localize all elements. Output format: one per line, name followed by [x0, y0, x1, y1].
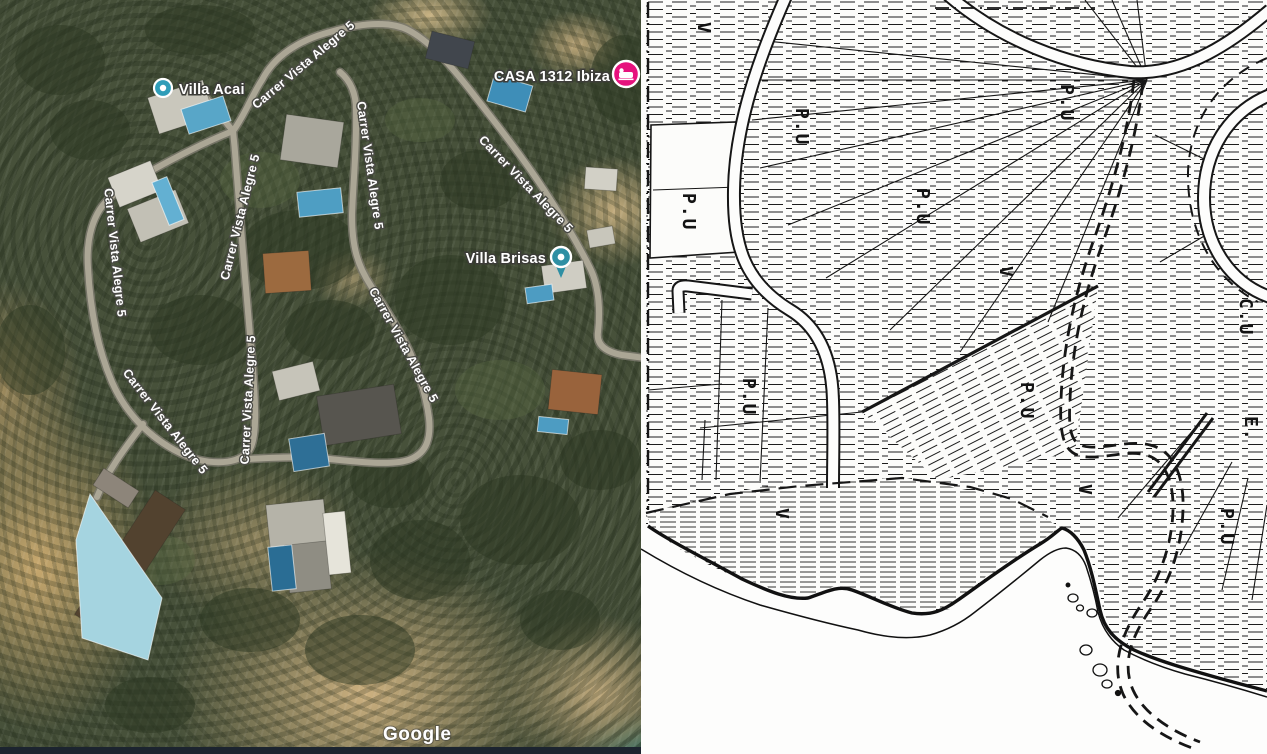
zone-label-pu: P.U — [1016, 382, 1037, 421]
zone-label-v: V — [1074, 484, 1095, 497]
google-watermark: Google — [383, 724, 451, 745]
zone-label-pu: P.U — [912, 188, 933, 227]
place-casa-1312-ibiza[interactable]: CASA 1312 Ibiza — [494, 61, 639, 87]
satellite-overlay: Carrer Vista Alegre 5 Carrer Vista Alegr… — [0, 0, 641, 754]
zone-label-v: V — [995, 266, 1016, 279]
place-label-villa-acai[interactable]: Villa Acai — [179, 82, 245, 98]
zone-label-pu: P.U — [1056, 84, 1077, 123]
zone-label-cu: C.U — [1235, 298, 1256, 337]
white-parcel — [650, 122, 739, 258]
zone-label-pu: P.U — [738, 378, 759, 417]
place-villa-acai[interactable]: Villa Acai — [154, 79, 245, 98]
place-pin-center — [558, 254, 565, 261]
zone-label-pu: P.U — [1216, 508, 1237, 547]
map-bottom-strip — [0, 747, 641, 754]
zone-label-v: V — [693, 22, 714, 35]
place-label-villa-brisas[interactable]: Villa Brisas — [466, 251, 546, 267]
zone-label-e: E. — [1240, 416, 1261, 442]
street-label-carrer-vista-alegre: Carrer Vista Alegre 5 — [101, 188, 128, 318]
place-dot-center — [160, 85, 166, 91]
satellite-map-panel[interactable]: Carrer Vista Alegre 5 Carrer Vista Alegr… — [0, 0, 641, 754]
place-label-casa-1312-ibiza[interactable]: CASA 1312 Ibiza — [494, 69, 611, 85]
screenshot-root: Carrer Vista Alegre 5 Carrer Vista Alegr… — [0, 0, 1267, 754]
zone-label-pu: P.U — [791, 108, 812, 147]
street-label-carrer-vista-alegre: Carrer Vista Alegre 5 — [249, 18, 357, 112]
plan-drawing: V P.U P.U P.U P.U V P.U P.U C.U E. V V P… — [641, 0, 1267, 754]
cadastral-plan-panel: V P.U P.U P.U P.U V P.U P.U C.U E. V V P… — [641, 0, 1267, 754]
zone-label-v: V — [771, 508, 792, 521]
zone-label-pu: P.U — [678, 193, 699, 232]
